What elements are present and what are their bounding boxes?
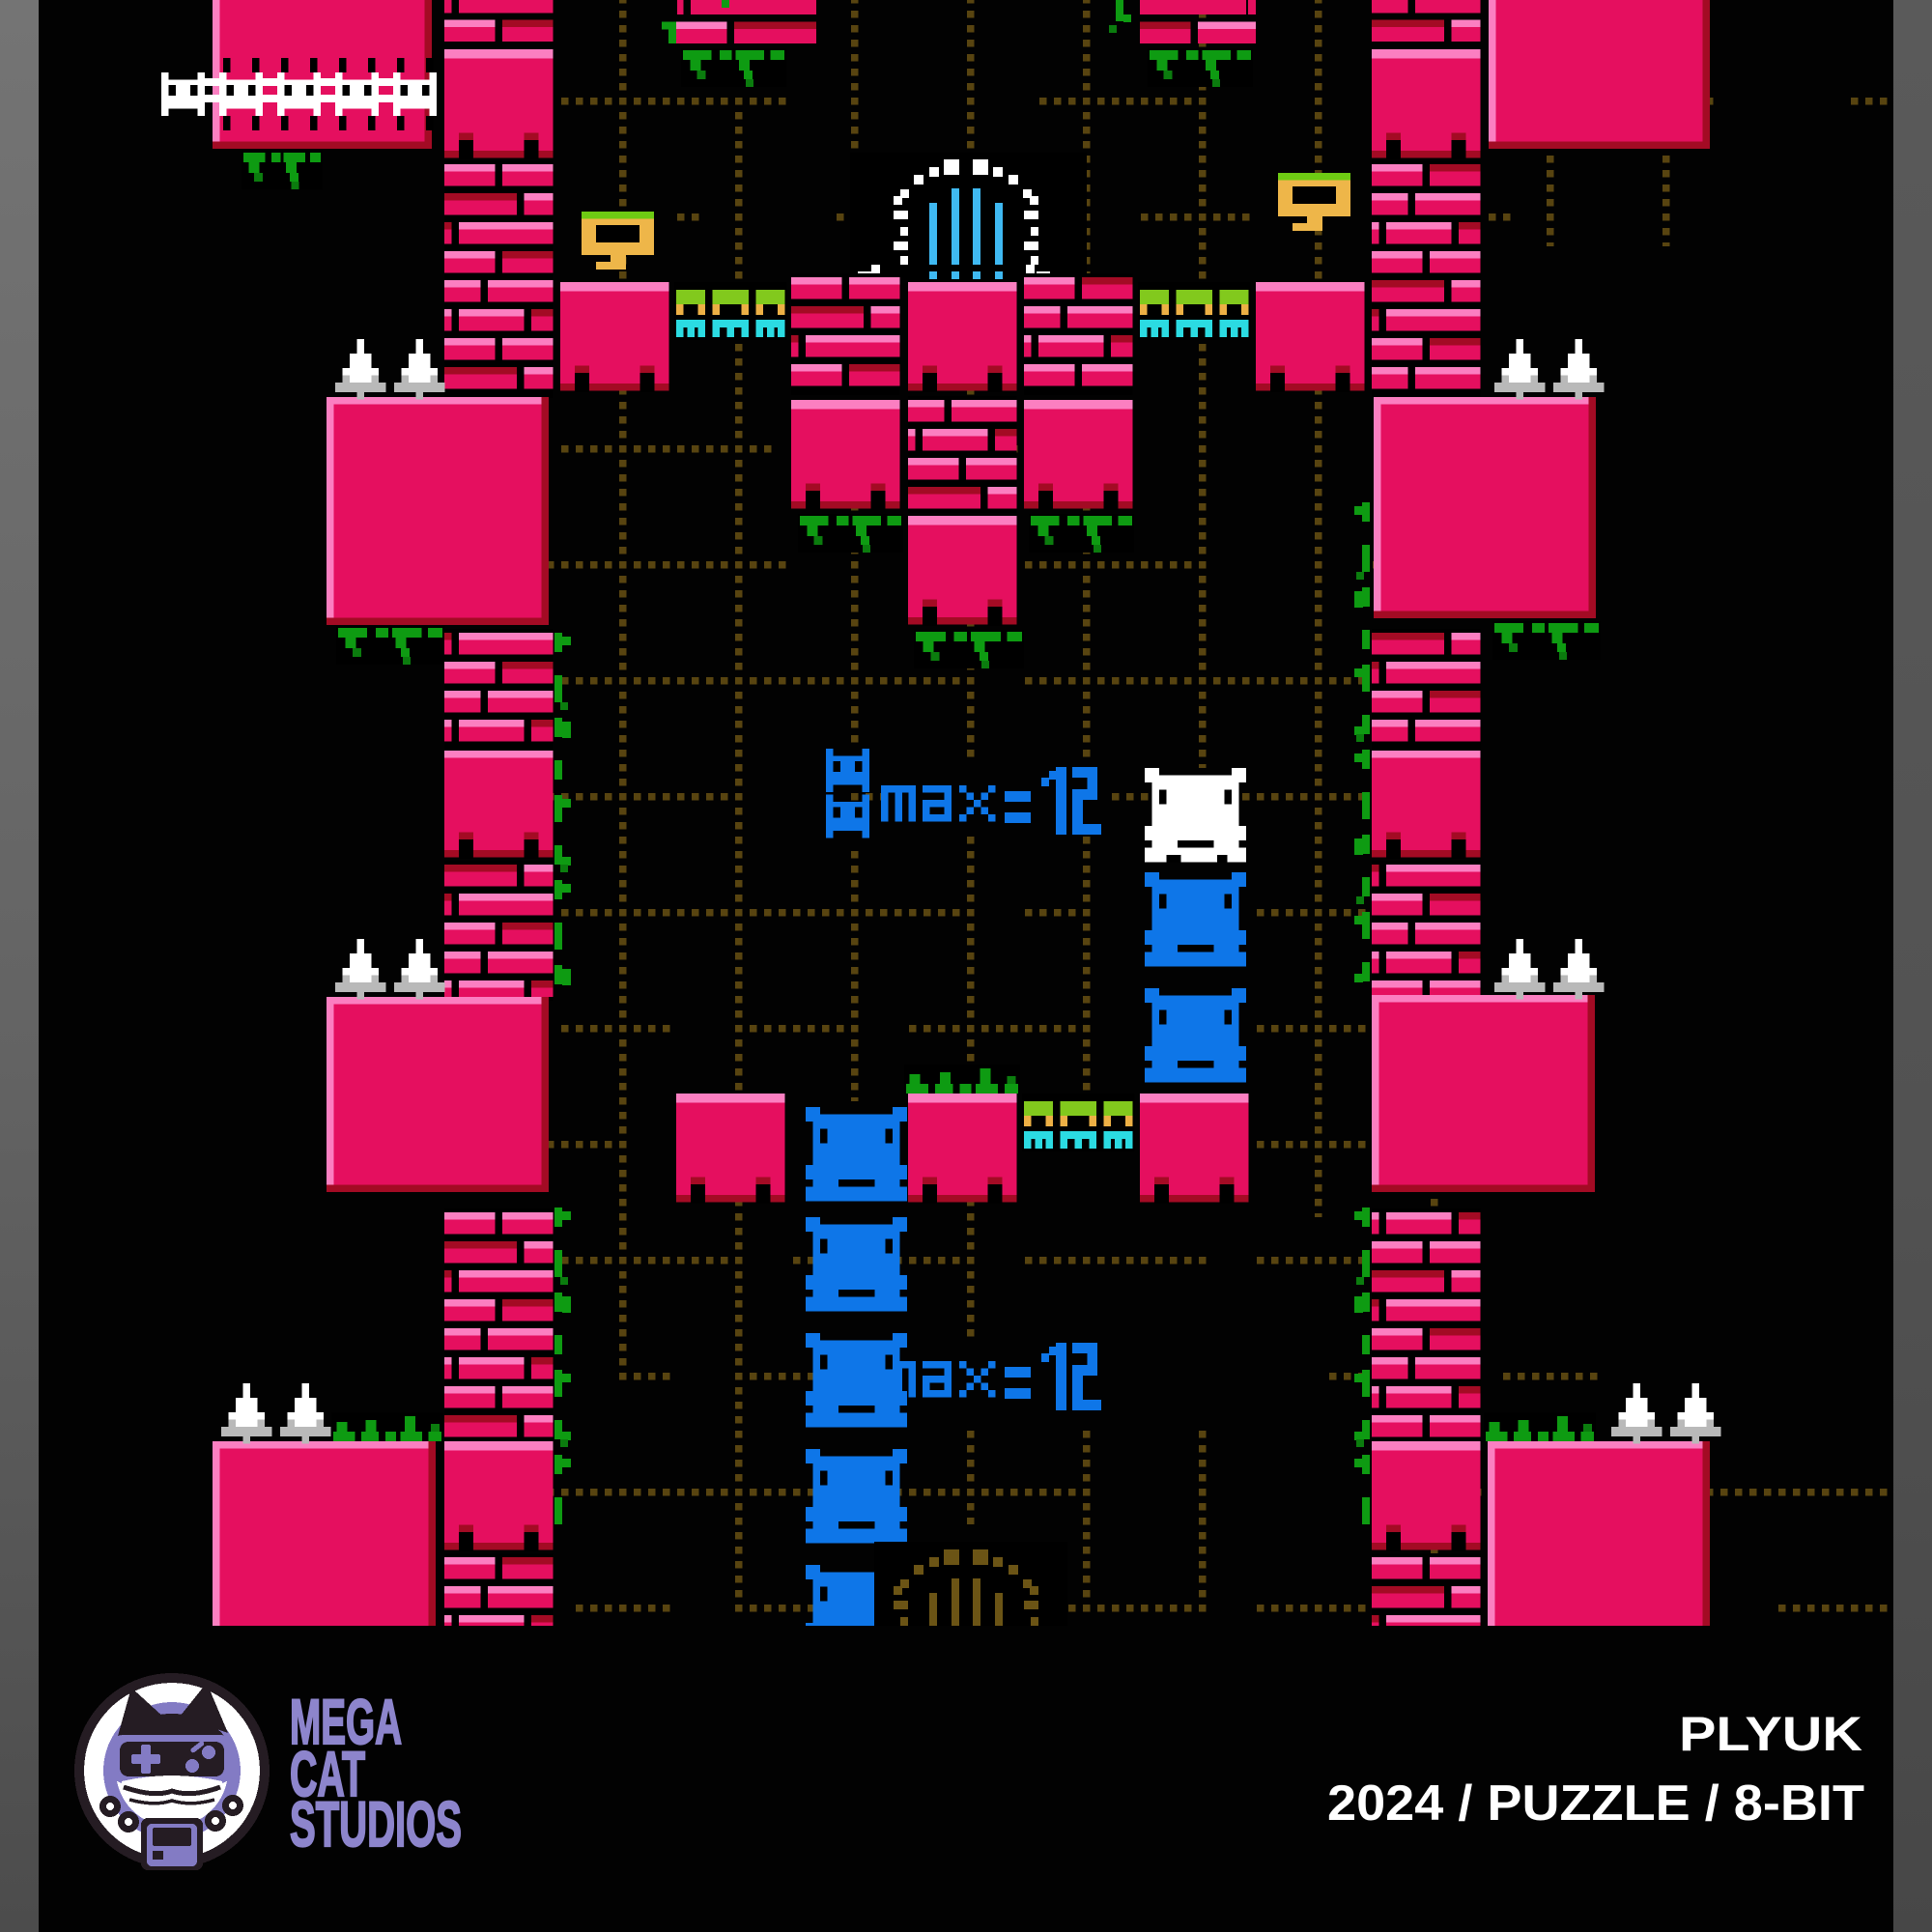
svg-text:2024 / PUZZLE / 8-BIT: 2024 / PUZZLE / 8-BIT <box>1327 1776 1864 1832</box>
svg-text:STUDIOS: STUDIOS <box>290 1788 462 1860</box>
svg-text:PLYUK: PLYUK <box>1679 1707 1862 1761</box>
